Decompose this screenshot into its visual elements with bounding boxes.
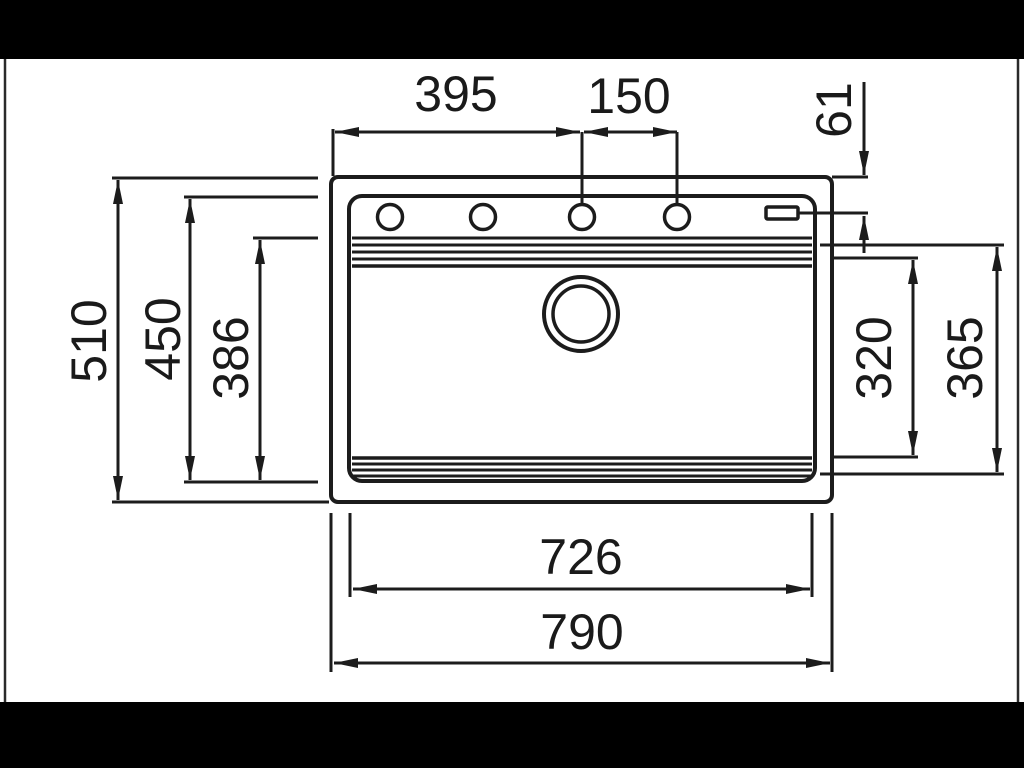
screenshot-canvas: 395 150 61 510 450 386 320 365 726 790 xyxy=(0,0,1024,768)
dim-label-365: 365 xyxy=(937,316,993,399)
accessory-slot xyxy=(766,207,798,219)
outer-cutout-outline xyxy=(331,177,832,502)
dim-label-450: 450 xyxy=(135,297,191,380)
faucet-hole-3 xyxy=(570,205,595,230)
dim-label-790: 790 xyxy=(540,604,623,660)
dim-label-510: 510 xyxy=(61,299,117,382)
rim-step-lines-top xyxy=(352,238,812,259)
drain-circle-outer xyxy=(544,277,618,351)
dim-label-395: 395 xyxy=(414,66,497,122)
faucet-hole-2 xyxy=(471,205,496,230)
dim-label-386: 386 xyxy=(203,316,259,399)
faucet-hole-1 xyxy=(378,205,403,230)
dim-label-726: 726 xyxy=(539,529,622,585)
rim-step-lines-bottom xyxy=(352,464,812,476)
sink-dimension-drawing: 395 150 61 510 450 386 320 365 726 790 xyxy=(0,0,1024,768)
drain-circle-inner xyxy=(553,286,609,342)
dim-label-320: 320 xyxy=(846,316,902,399)
dimension-labels: 395 150 61 510 450 386 320 365 726 790 xyxy=(61,66,993,660)
sink-geometry xyxy=(331,177,832,502)
faucet-hole-4 xyxy=(665,205,690,230)
dim-label-61: 61 xyxy=(806,82,862,138)
dim-label-150: 150 xyxy=(587,68,670,124)
